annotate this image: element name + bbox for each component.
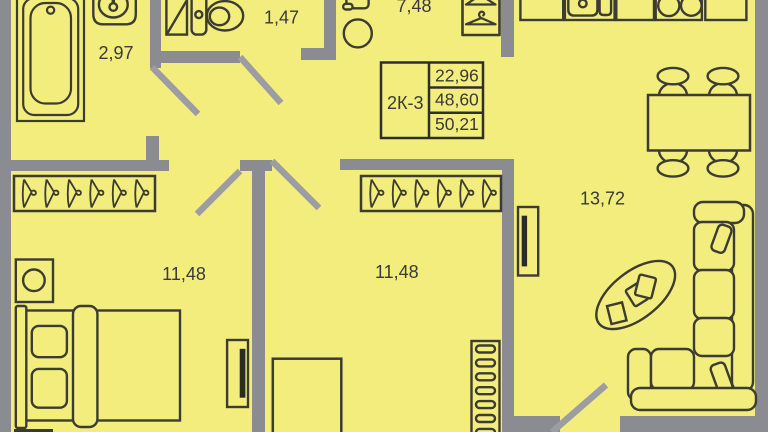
svg-text:1,47: 1,47 <box>264 8 299 28</box>
svg-text:22,96: 22,96 <box>435 65 479 85</box>
svg-text:13,72: 13,72 <box>580 189 625 209</box>
svg-text:11,48: 11,48 <box>375 262 419 282</box>
svg-text:50,21: 50,21 <box>435 114 479 134</box>
svg-text:48,60: 48,60 <box>435 90 479 110</box>
svg-text:2,97: 2,97 <box>98 43 133 63</box>
svg-text:7,48: 7,48 <box>396 0 431 16</box>
svg-text:2К-3: 2К-3 <box>387 93 424 113</box>
svg-text:11,48: 11,48 <box>162 264 206 284</box>
